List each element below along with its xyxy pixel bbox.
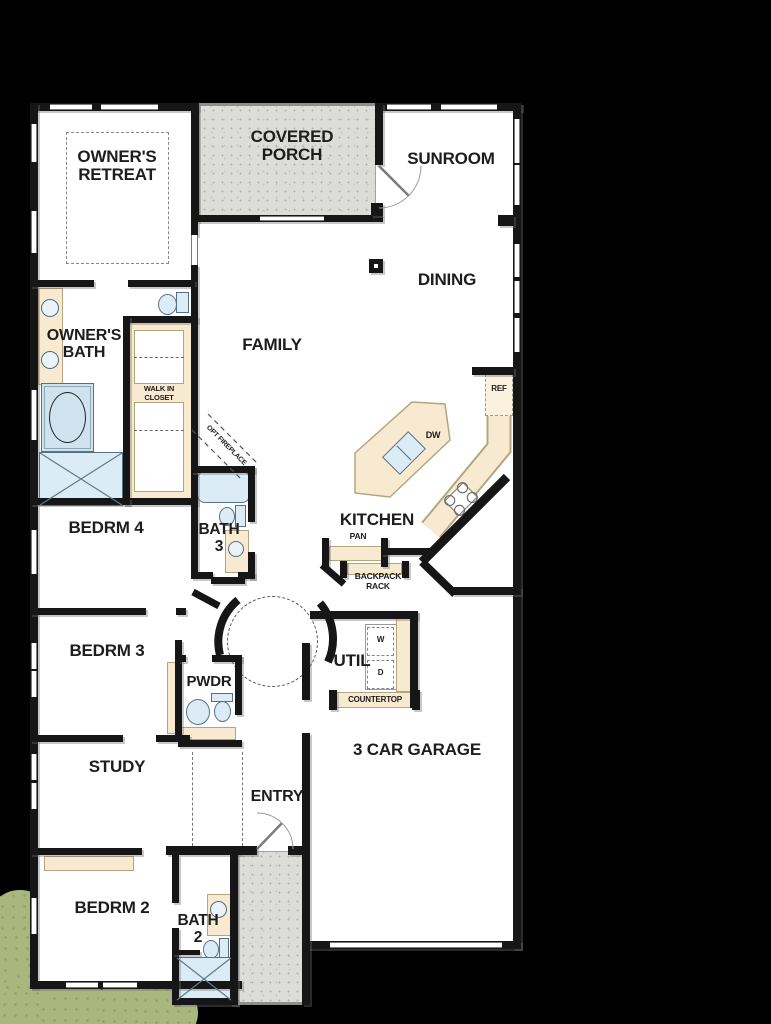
room-label-util: UTIL: [322, 652, 382, 670]
room-label-garage: 3 CAR GARAGE: [337, 741, 497, 759]
room-label-dining: DINING: [402, 271, 492, 289]
room-label-bedrm3: BEDRM 3: [57, 642, 157, 660]
room-label-owners-bath: OWNER'S BATH: [38, 327, 130, 362]
room-label-covered-porch: COVERED PORCH: [237, 128, 347, 165]
annotation-dryer: D: [367, 669, 394, 678]
wall-segment: [322, 565, 344, 584]
annotation-ref: REF: [485, 385, 513, 394]
annotation-countertop: COUNTERTOP: [336, 696, 414, 705]
room-label-kitchen: KITCHEN: [327, 511, 427, 529]
room-label-bedrm2: BEDRM 2: [62, 899, 162, 917]
room-label-sunroom: SUNROOM: [396, 150, 506, 168]
room-label-bedrm4: BEDRM 4: [56, 519, 156, 537]
wall-segment: [422, 562, 455, 594]
wall-segment: [193, 592, 219, 606]
room-label-study: STUDY: [77, 758, 157, 776]
annotation-dw: DW: [418, 431, 448, 441]
room-label-bath2: BATH 2: [175, 913, 221, 946]
room-label-family: FAMILY: [227, 336, 317, 354]
room-label-pwdr: PWDR: [174, 674, 244, 690]
room-label-owners-retreat: OWNER'S RETREAT: [57, 148, 177, 185]
floorplan-canvas: OWNER'S RETREAT COVERED PORCH SUNROOM DI…: [0, 0, 771, 1024]
curved-wall: [218, 600, 238, 655]
room-label-bath3: BATH 3: [196, 522, 242, 555]
room-label-walk-in-closet: WALK IN CLOSET: [137, 384, 181, 402]
room-label-entry: ENTRY: [237, 788, 317, 805]
sunroom-door-leaf: [379, 166, 409, 196]
annotation-backpack-rack: BACKPACK RACK: [349, 572, 407, 592]
annotation-pan: PAN: [338, 532, 378, 541]
annotation-washer: W: [367, 636, 394, 645]
entry-door-leaf: [257, 823, 282, 849]
